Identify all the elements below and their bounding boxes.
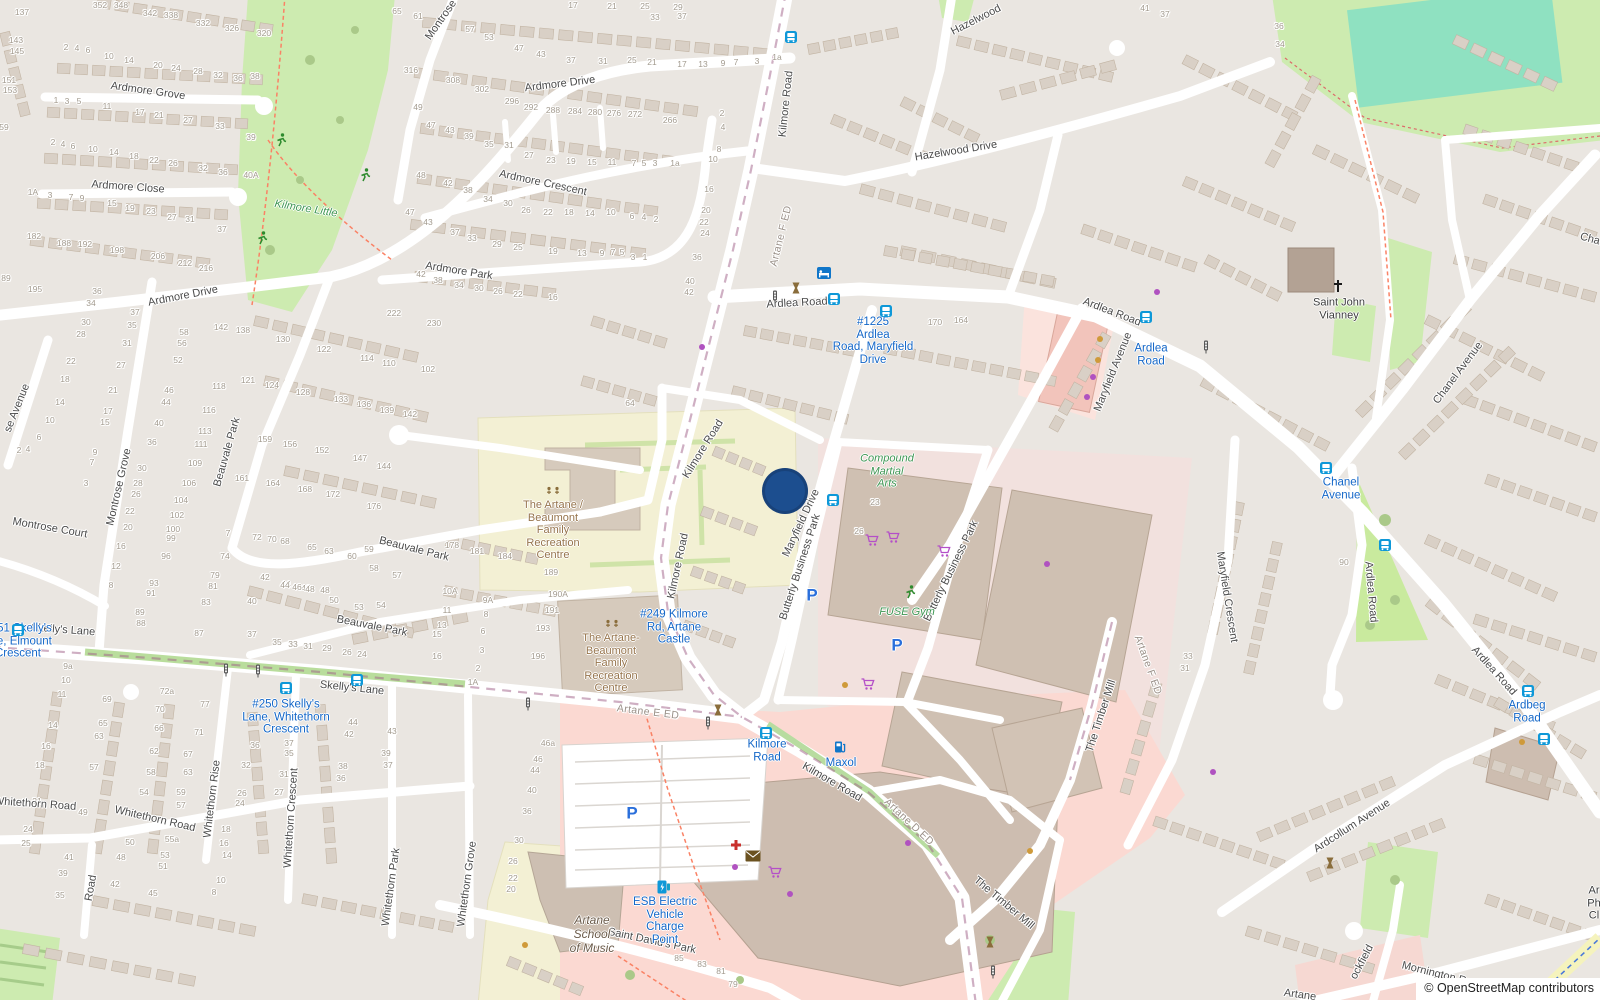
- house-number: 3: [653, 158, 658, 168]
- house-number: 63: [324, 546, 333, 556]
- house-number: 26: [168, 158, 177, 168]
- house-number: 21: [154, 110, 163, 120]
- house-number: 37: [566, 55, 575, 65]
- house-number: 24: [171, 63, 180, 73]
- house-number: 161: [235, 473, 249, 483]
- house-number: 26: [237, 788, 246, 798]
- house-number: 10: [61, 675, 70, 685]
- poi-label: FUSE Gym: [879, 606, 935, 619]
- house-number: 36: [250, 740, 259, 750]
- house-number: 6: [630, 211, 635, 221]
- house-number: 182: [27, 231, 41, 241]
- house-number: 14: [585, 208, 594, 218]
- house-number: 276: [607, 108, 621, 118]
- house-number: 30: [503, 198, 512, 208]
- traffic-icon: [990, 966, 997, 979]
- house-number: 49: [413, 102, 422, 112]
- traffic-icon: [772, 291, 779, 304]
- house-number: 46: [164, 385, 173, 395]
- house-number: 39: [246, 132, 255, 142]
- poi-label: ArdbegRoad: [1508, 700, 1545, 725]
- house-number: 58: [146, 767, 155, 777]
- house-number: 14: [124, 55, 133, 65]
- house-number: 14: [222, 850, 231, 860]
- house-number: 91: [146, 588, 155, 598]
- map-canvas[interactable]: © OpenStreetMap contributors Ardmore Gro…: [0, 0, 1600, 1000]
- house-number: 7: [611, 247, 616, 257]
- house-number: 67: [183, 749, 192, 759]
- house-number: 6: [86, 45, 91, 55]
- house-number: 38: [250, 71, 259, 81]
- house-number: 47: [514, 43, 523, 53]
- house-number: 59: [364, 544, 373, 554]
- house-number: 39: [381, 748, 390, 758]
- house-number: 90: [1339, 557, 1348, 567]
- house-number: 4: [75, 43, 80, 53]
- poi-label: The Artane-BeaumontFamilyRecreationCentr…: [582, 632, 639, 695]
- house-number: 114: [360, 353, 374, 363]
- house-number: 139: [380, 405, 394, 415]
- house-number: 28: [133, 478, 142, 488]
- house-number: 9: [80, 193, 85, 203]
- house-number: 9: [93, 447, 98, 457]
- house-number: 46: [533, 754, 542, 764]
- house-number: 34: [483, 194, 492, 204]
- house-number: 22: [149, 155, 158, 165]
- house-number: 1A: [468, 677, 478, 687]
- house-number: 33: [1183, 651, 1192, 661]
- house-number: 28: [76, 329, 85, 339]
- attribution[interactable]: © OpenStreetMap contributors: [1416, 978, 1600, 1000]
- house-number: 195: [28, 284, 42, 294]
- house-number: 15: [432, 629, 441, 639]
- house-number: 9a: [63, 661, 72, 671]
- poi-label: #249 KilmoreRd, ArtaneCastle: [640, 608, 708, 646]
- house-number: 42: [443, 178, 452, 188]
- house-number: 8: [212, 887, 217, 897]
- house-number: 35: [484, 139, 493, 149]
- house-number: 62: [149, 746, 158, 756]
- house-number: 102: [421, 364, 435, 374]
- poi-dot: [1210, 769, 1216, 775]
- cart-icon: [861, 677, 876, 691]
- bus-icon: [828, 293, 841, 306]
- house-number: 21: [607, 1, 616, 11]
- traffic-icon: [705, 717, 712, 730]
- house-number: 111: [195, 439, 208, 449]
- house-number: 43: [445, 125, 454, 135]
- house-number: 43: [423, 217, 432, 227]
- house-number: 8: [109, 580, 114, 590]
- house-number: 57: [176, 800, 185, 810]
- house-number: 56: [177, 338, 186, 348]
- house-number: 124: [265, 380, 279, 390]
- house-number: 14: [109, 147, 118, 157]
- house-number: 113: [198, 426, 212, 436]
- house-number: 20: [153, 60, 162, 70]
- house-number: 63: [94, 731, 103, 741]
- house-number: 16: [548, 292, 557, 302]
- poi-dot: [1084, 394, 1090, 400]
- house-number: 40: [527, 785, 536, 795]
- house-number: 18: [129, 151, 138, 161]
- bus-icon: [12, 624, 25, 637]
- bus-icon: [1522, 685, 1535, 698]
- fuel-icon: [834, 741, 846, 754]
- house-number: 21: [108, 385, 117, 395]
- house-number: 32: [198, 163, 207, 173]
- house-number: 10A: [442, 586, 457, 596]
- bus-icon: [785, 31, 798, 44]
- house-number: 89: [1, 273, 10, 283]
- house-number: 222: [387, 308, 401, 318]
- house-number: 189: [544, 567, 558, 577]
- cart-icon: [865, 533, 880, 547]
- house-number: 25: [640, 1, 649, 11]
- house-number: 81: [208, 581, 217, 591]
- house-number: 22: [699, 217, 708, 227]
- house-number: 6: [481, 626, 486, 636]
- house-number: 79: [210, 570, 219, 580]
- house-number: 59: [0, 122, 9, 132]
- house-number: 206: [151, 251, 165, 261]
- house-number: 23: [870, 497, 879, 507]
- house-number: 19: [566, 156, 575, 166]
- house-number: 338: [164, 10, 178, 20]
- poi-dot: [699, 344, 705, 350]
- house-number: 14: [48, 720, 57, 730]
- house-number: 42: [684, 287, 693, 297]
- house-number: 37: [450, 227, 459, 237]
- poi-label: ArdleaRoad: [1134, 343, 1167, 368]
- house-number: 130: [276, 334, 290, 344]
- playground-icon: [604, 619, 620, 629]
- house-number: 22: [513, 289, 522, 299]
- house-number: 65: [392, 6, 401, 16]
- house-number: 38: [433, 275, 442, 285]
- house-number: 19: [125, 203, 134, 213]
- poi-dot: [842, 682, 848, 688]
- house-number: 36: [522, 806, 531, 816]
- house-number: 14: [55, 397, 64, 407]
- bus-icon: [1538, 733, 1551, 746]
- house-number: 33: [288, 639, 297, 649]
- poi-label: #1225ArdleaRoad, MaryfieldDrive: [833, 316, 914, 366]
- playground-icon: [545, 486, 561, 496]
- house-number: 53: [160, 850, 169, 860]
- house-number: 153: [3, 85, 17, 95]
- house-number: 54: [139, 787, 148, 797]
- house-number: 26: [521, 205, 530, 215]
- house-number: 188: [57, 238, 71, 248]
- parking-icon: P: [626, 805, 637, 822]
- house-number: 27: [116, 360, 125, 370]
- house-number: 48: [416, 170, 425, 180]
- house-number: 116: [202, 405, 216, 415]
- house-number: 44: [530, 765, 539, 775]
- house-number: 122: [317, 344, 331, 354]
- house-number: 72a: [160, 686, 174, 696]
- house-number: 37: [217, 224, 226, 234]
- house-number: 4: [642, 212, 647, 222]
- house-number: 65: [307, 542, 316, 552]
- house-number: 10: [216, 875, 225, 885]
- house-number: 5: [642, 158, 647, 168]
- house-number: 79: [728, 979, 737, 989]
- house-number: 8: [717, 144, 722, 154]
- house-number: 37: [130, 307, 139, 317]
- house-number: 292: [524, 102, 538, 112]
- house-number: 106: [182, 478, 196, 488]
- house-number: 48: [305, 584, 314, 594]
- house-number: 18: [221, 824, 230, 834]
- house-number: 7: [69, 192, 74, 202]
- house-number: 31: [1180, 663, 1189, 673]
- bus-icon: [760, 727, 773, 740]
- house-number: 26: [131, 489, 140, 499]
- church-cross-icon: [1332, 279, 1344, 293]
- house-number: 39: [58, 868, 67, 878]
- house-number: 5: [620, 247, 625, 257]
- ev-charge-icon: [658, 881, 671, 894]
- house-number: 20: [506, 884, 515, 894]
- house-number: 144: [377, 461, 391, 471]
- house-number: 352: [93, 0, 107, 10]
- house-number: 25: [513, 242, 522, 252]
- house-number: 35: [272, 637, 281, 647]
- house-number: 38: [338, 761, 347, 771]
- house-number: 60: [347, 551, 356, 561]
- house-number: 17: [568, 0, 577, 10]
- house-number: 25: [21, 838, 30, 848]
- traffic-icon: [223, 664, 230, 677]
- poi-dot: [1097, 336, 1103, 342]
- house-number: 74: [220, 551, 229, 561]
- house-number: 16: [432, 651, 441, 661]
- house-number: 96: [161, 551, 170, 561]
- traffic-icon: [255, 665, 262, 678]
- house-number: 40: [247, 596, 256, 606]
- house-number: 41: [64, 852, 73, 862]
- house-number: 320: [257, 28, 271, 38]
- house-number: 43: [536, 49, 545, 59]
- house-number: 121: [241, 375, 255, 385]
- house-number: 102: [170, 510, 184, 520]
- house-number: 16: [219, 838, 228, 848]
- poi-dot: [1090, 374, 1096, 380]
- house-number: 37: [284, 738, 293, 748]
- house-number: 59: [176, 787, 185, 797]
- house-number: 151: [2, 75, 16, 85]
- monument-icon: [792, 282, 801, 295]
- runner-icon: [904, 585, 916, 599]
- house-number: 34: [86, 298, 95, 308]
- house-number: 11: [443, 605, 452, 615]
- house-number: 181: [470, 546, 484, 556]
- house-number: 29: [322, 643, 331, 653]
- house-number: 30: [137, 463, 146, 473]
- house-number: 24: [700, 228, 709, 238]
- house-number: 22: [125, 506, 134, 516]
- house-number: 38: [463, 185, 472, 195]
- house-number: 172: [326, 489, 340, 499]
- house-number: 77: [200, 699, 209, 709]
- house-number: 21: [647, 57, 656, 67]
- house-number: 302: [475, 84, 489, 94]
- house-number: 6: [71, 141, 76, 151]
- house-number: 63: [183, 767, 192, 777]
- bus-icon: [280, 682, 293, 695]
- house-number: 104: [174, 495, 188, 505]
- house-number: 296: [505, 96, 519, 106]
- poi-label: CompoundMartialArts: [860, 452, 914, 490]
- monument-icon: [1326, 857, 1335, 870]
- house-number: 4: [61, 139, 66, 149]
- house-number: 65: [98, 718, 107, 728]
- house-number: 30: [474, 283, 483, 293]
- hotel-icon: [817, 267, 831, 279]
- post-icon: [746, 851, 761, 862]
- house-number: 10: [606, 207, 615, 217]
- house-number: 9A: [483, 595, 493, 605]
- house-number: 58: [369, 563, 378, 573]
- house-number: 31: [504, 140, 513, 150]
- house-number: 27: [274, 787, 283, 797]
- house-number: 168: [298, 484, 312, 494]
- house-number: 152: [315, 445, 329, 455]
- house-number: 41: [1140, 3, 1149, 13]
- house-number: 51: [158, 861, 167, 871]
- house-number: 216: [199, 263, 213, 273]
- house-number: 1: [643, 252, 648, 262]
- house-number: 212: [178, 258, 192, 268]
- house-number: 50: [329, 595, 338, 605]
- house-number: 99: [166, 533, 175, 543]
- house-number: 26: [854, 526, 863, 536]
- house-number: 35: [284, 748, 293, 758]
- house-number: 26: [493, 286, 502, 296]
- house-number: 42: [260, 572, 269, 582]
- house-number: 44: [348, 717, 357, 727]
- house-number: 1: [54, 95, 59, 105]
- house-number: 89: [135, 607, 144, 617]
- house-number: 83: [697, 959, 706, 969]
- bus-icon: [827, 494, 840, 507]
- house-number: 6: [37, 432, 42, 442]
- house-number: 39: [464, 131, 473, 141]
- house-number: 1a: [772, 52, 781, 62]
- house-number: 57: [465, 24, 474, 34]
- house-number: 3: [84, 478, 89, 488]
- house-number: 54: [376, 600, 385, 610]
- house-number: 348: [114, 0, 128, 10]
- house-number: 52: [173, 355, 182, 365]
- house-number: 37: [1160, 9, 1169, 19]
- house-number: 70: [155, 704, 164, 714]
- house-number: 13: [698, 59, 707, 69]
- house-number: 29: [492, 239, 501, 249]
- house-number: 31: [122, 338, 131, 348]
- attribution-text[interactable]: © OpenStreetMap contributors: [1424, 981, 1594, 995]
- house-number: 184: [498, 551, 512, 561]
- house-number: 37: [383, 760, 392, 770]
- house-number: 36: [218, 167, 227, 177]
- house-number: 47: [426, 120, 435, 130]
- house-number: 37: [247, 629, 256, 639]
- house-number: 16: [116, 541, 125, 551]
- pharmacy-icon: [730, 839, 742, 851]
- house-number: 11: [608, 157, 617, 167]
- house-number: 33: [215, 121, 224, 131]
- house-number: 48: [320, 585, 329, 595]
- house-number: 18: [60, 374, 69, 384]
- house-number: 44: [161, 397, 170, 407]
- house-number: 18: [35, 760, 44, 770]
- bus-icon: [1379, 539, 1392, 552]
- house-number: 284: [568, 106, 582, 116]
- house-number: 72: [252, 532, 261, 542]
- house-number: 42: [344, 729, 353, 739]
- house-number: 57: [89, 762, 98, 772]
- house-number: 30: [81, 317, 90, 327]
- house-number: 3: [755, 56, 760, 66]
- map-marker[interactable]: [762, 468, 808, 514]
- house-number: 178: [445, 540, 459, 550]
- house-number: 198: [110, 245, 124, 255]
- house-number: 43: [387, 726, 396, 736]
- house-number: 24: [23, 824, 32, 834]
- house-number: 17: [677, 59, 686, 69]
- house-number: 23: [546, 155, 555, 165]
- house-number: 109: [188, 458, 202, 468]
- house-number: 159: [258, 434, 272, 444]
- house-number: 85: [674, 953, 683, 963]
- poi-dot: [1027, 848, 1033, 854]
- house-number: 3: [480, 645, 485, 655]
- house-number: 32: [213, 70, 222, 80]
- house-number: 50: [125, 837, 134, 847]
- house-number: 30: [514, 835, 523, 845]
- house-number: 36: [336, 773, 345, 783]
- poi-dot: [905, 840, 911, 846]
- house-number: 71: [194, 727, 203, 737]
- cart-icon: [886, 530, 901, 544]
- house-number: 196: [531, 651, 545, 661]
- house-number: 36: [92, 286, 101, 296]
- poi-label: The Artane /BeaumontFamilyRecreationCent…: [523, 499, 583, 562]
- house-number: 164: [954, 315, 968, 325]
- poi-dot: [787, 891, 793, 897]
- house-number: 31: [185, 214, 194, 224]
- poi-label: ArPhCl: [1587, 884, 1600, 922]
- house-number: 3: [65, 96, 70, 106]
- house-number: 44: [280, 580, 289, 590]
- monument-icon: [714, 704, 723, 717]
- house-number: 64: [625, 398, 634, 408]
- monument-icon: [986, 936, 995, 949]
- house-number: 192: [78, 239, 92, 249]
- house-number: 68: [280, 536, 289, 546]
- house-number: 36: [147, 437, 156, 447]
- house-number: 4: [26, 444, 31, 454]
- house-number: 45: [148, 888, 157, 898]
- house-number: 15: [587, 157, 596, 167]
- house-number: 3: [631, 252, 636, 262]
- house-number: 193: [536, 623, 550, 633]
- house-number: 110: [382, 358, 396, 368]
- poi-dot: [522, 942, 528, 948]
- poi-dot: [1044, 561, 1050, 567]
